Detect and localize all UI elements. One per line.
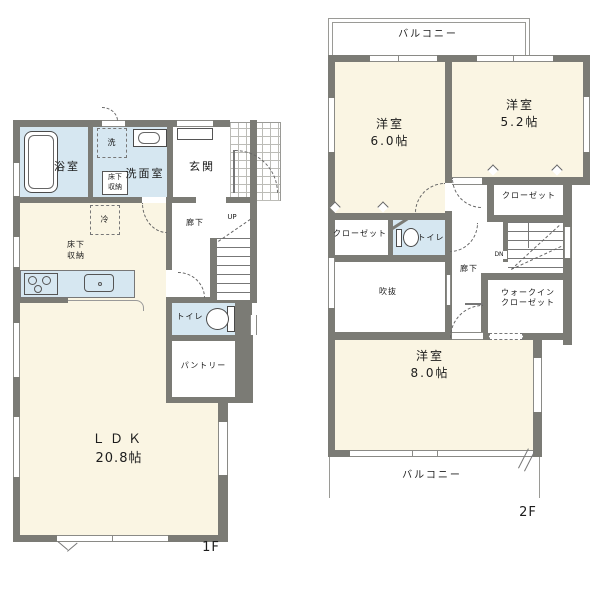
window — [564, 227, 571, 258]
door-arc — [450, 305, 483, 338]
stairs-divider — [528, 222, 529, 248]
window — [13, 237, 20, 267]
label-ldk: ＬＤＫ — [79, 432, 159, 449]
door-opening — [196, 197, 226, 203]
washbasin-icon — [133, 129, 167, 147]
wall — [213, 120, 230, 127]
window — [250, 315, 257, 335]
window — [477, 55, 553, 62]
label-room8: 洋室 — [400, 349, 460, 365]
label-toilet1: トイレ — [172, 312, 208, 322]
wall — [166, 397, 253, 403]
window — [13, 323, 20, 377]
wall — [328, 332, 452, 340]
window — [583, 97, 590, 152]
label-pantry: パントリー — [172, 361, 235, 371]
window — [370, 55, 437, 62]
label-washroom: 洗面室 — [122, 167, 168, 181]
label-stairs-dn: DN — [491, 251, 507, 259]
label-toilet2: トイレ — [413, 233, 449, 243]
wic-open-entry — [489, 333, 523, 340]
window — [350, 450, 533, 457]
toilet-bowl-icon — [206, 308, 229, 330]
label-room8-size: 8.0帖 — [400, 366, 460, 382]
label-void: 吹抜 — [368, 287, 408, 297]
room-ldk-floor2 — [166, 403, 218, 535]
window-mullion — [398, 55, 399, 62]
wall — [20, 298, 68, 303]
label-hallway2: 廊下 — [454, 264, 484, 274]
label-floor-2f: 2F — [508, 505, 548, 522]
door-arc — [178, 272, 205, 298]
wall — [167, 120, 173, 203]
window-mullion — [437, 450, 438, 457]
label-closet-right: クローゼット — [494, 191, 564, 201]
label-room6: 洋室 — [360, 117, 420, 133]
window-mullion — [513, 55, 514, 62]
door-leaf — [465, 303, 483, 305]
toilet-tank-icon — [396, 229, 402, 247]
label-balcony-top: バルコニー — [383, 28, 473, 41]
door-opening — [166, 270, 172, 297]
window — [177, 120, 213, 127]
balcony-bottom-line — [329, 457, 330, 498]
window — [13, 417, 20, 477]
wall — [487, 177, 590, 185]
window — [328, 98, 335, 152]
label-underfloor: 床下 収納 — [58, 239, 94, 261]
window — [328, 258, 335, 308]
wall — [328, 255, 452, 262]
stairs-1f — [217, 238, 250, 300]
wall — [250, 120, 257, 303]
window-mullion — [112, 535, 113, 542]
balcony-bottom-line — [539, 457, 540, 498]
label-ldk-size: 20.8帖 — [79, 451, 159, 468]
label-stairs-up: UP — [222, 213, 242, 222]
stove-icon — [24, 273, 58, 295]
window — [218, 422, 228, 475]
door-swing-mark — [67, 543, 78, 552]
label-balcony-bottom: バルコニー — [387, 469, 477, 482]
door-swing-mark — [57, 541, 68, 550]
label-bath: 浴室 — [44, 160, 90, 174]
wall — [481, 273, 572, 280]
shoe-cabinet — [177, 128, 213, 140]
label-room6-size: 6.0帖 — [360, 134, 420, 150]
label-room52: 洋室 — [490, 98, 550, 114]
label-room52-size: 5.2帖 — [490, 115, 550, 131]
wall — [487, 215, 572, 222]
window-mullion — [412, 450, 413, 457]
label-fridge: 冷 — [90, 215, 120, 225]
window — [533, 358, 542, 412]
label-wic: ウォークイン クローゼット — [493, 288, 563, 309]
door-leaf — [233, 150, 235, 193]
wall — [563, 177, 572, 345]
label-entrance: 玄関 — [182, 160, 222, 174]
door-arc — [452, 178, 482, 208]
label-hallway1: 廊下 — [180, 218, 210, 228]
counter-edge — [68, 300, 144, 311]
wall — [328, 213, 452, 220]
window — [102, 120, 125, 127]
door-arc — [102, 107, 118, 121]
door-opening — [445, 183, 452, 211]
interior-window — [446, 275, 451, 305]
label-laundry: 洗 — [97, 138, 127, 148]
wall — [235, 341, 253, 403]
kitchen-sink-icon — [84, 274, 114, 292]
floor-plan: UP 洗 床下 収納 冷 浴室 洗面室 玄関 床下 収納 廊下 トイレ パントリ… — [0, 0, 600, 599]
wall — [210, 238, 217, 303]
wall — [13, 197, 142, 203]
label-floor-1f: 1F — [196, 540, 226, 557]
label-closet-left: クローゼット — [331, 229, 389, 239]
window — [13, 163, 20, 196]
wall — [445, 55, 452, 183]
door-arc — [450, 223, 478, 252]
